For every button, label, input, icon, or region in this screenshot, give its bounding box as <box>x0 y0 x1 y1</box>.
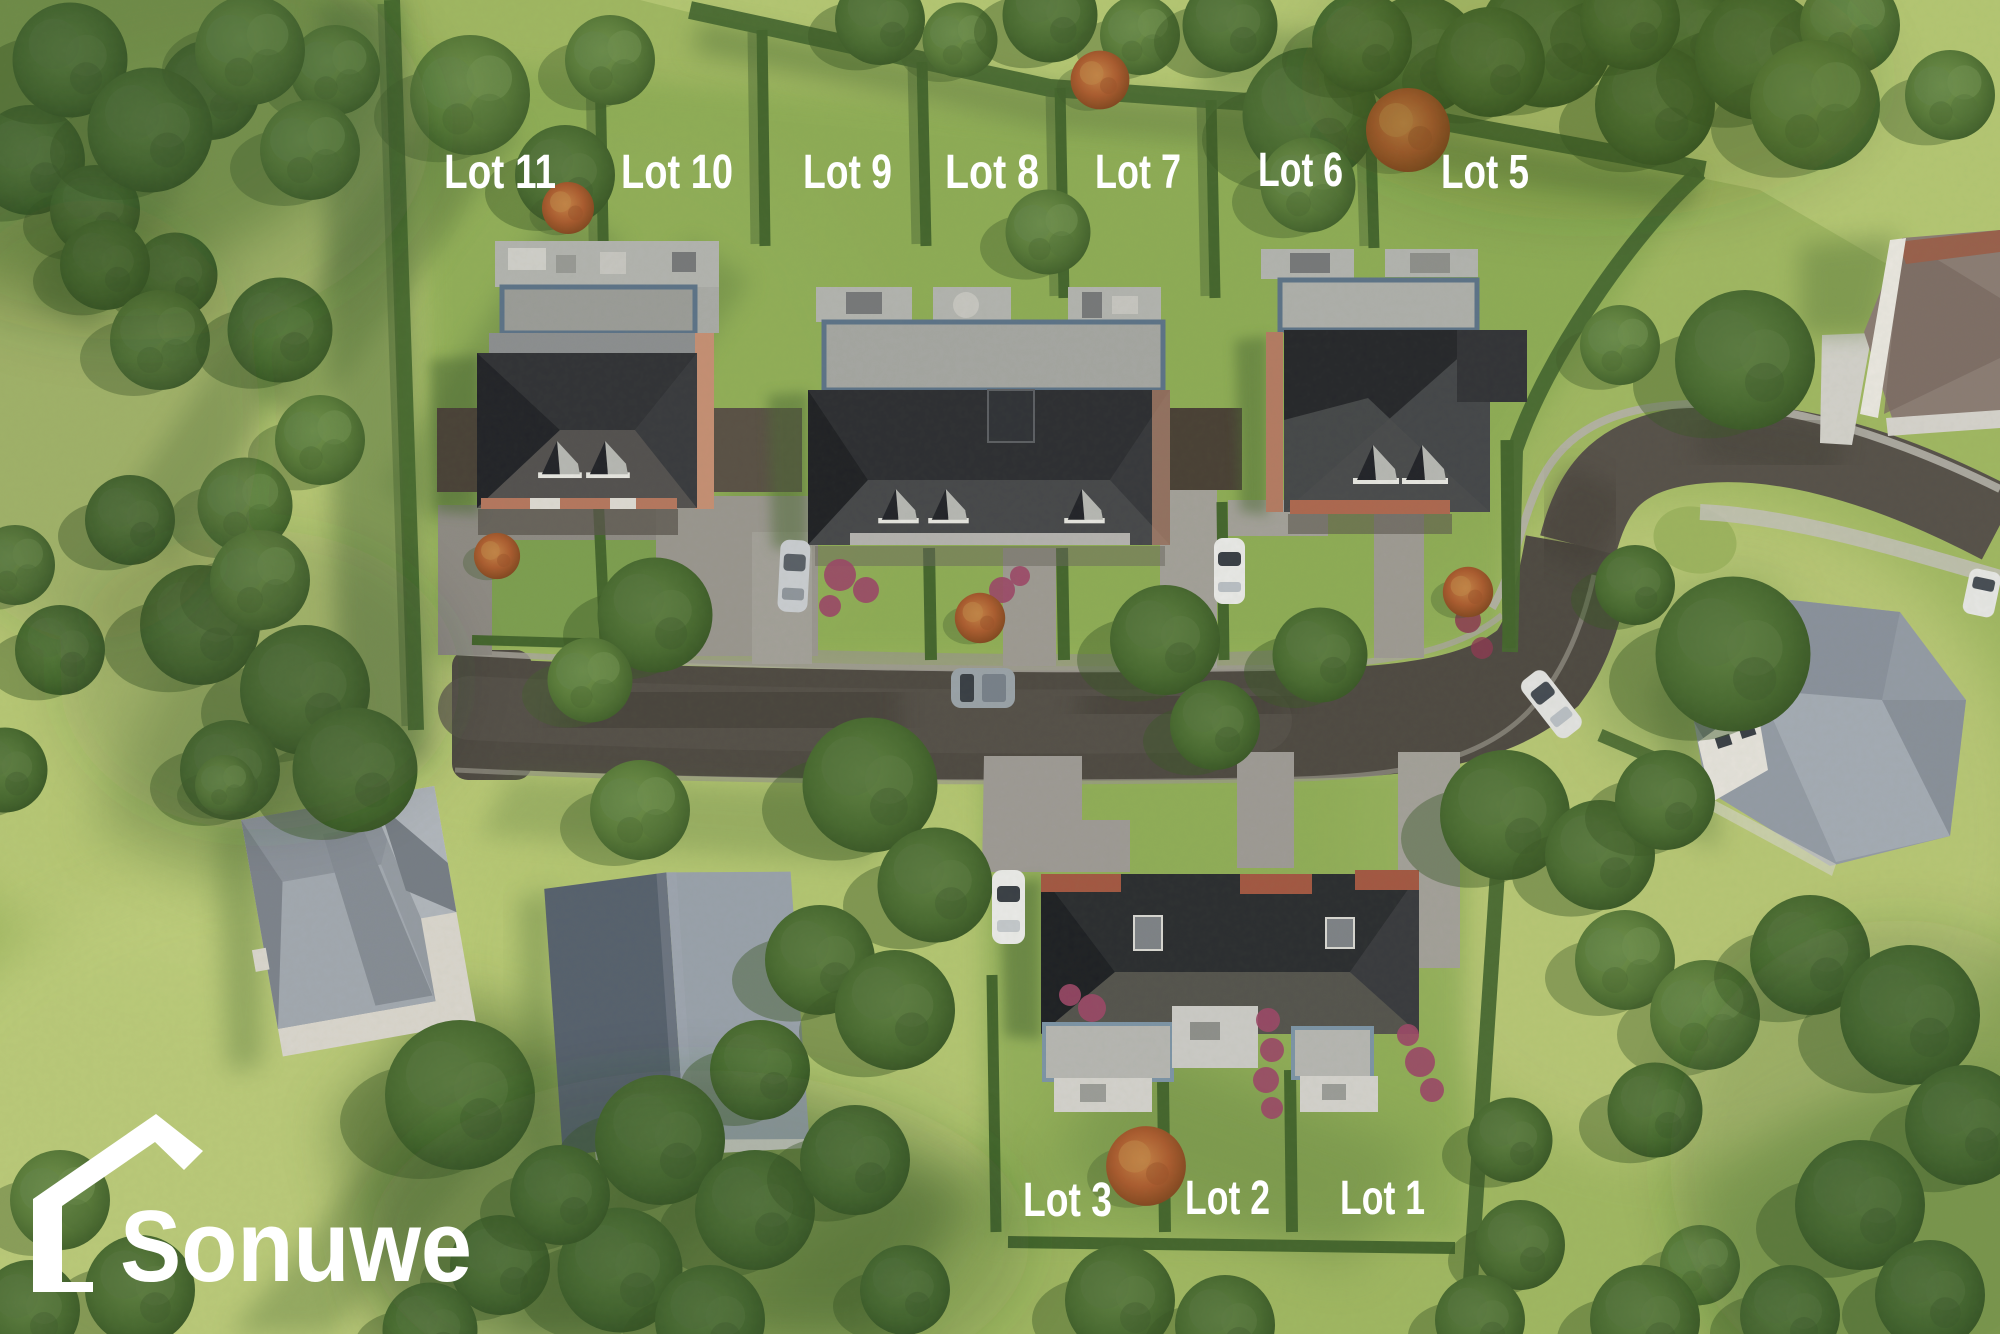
svg-text:Lot 11: Lot 11 <box>444 146 556 199</box>
svg-text:Lot 9: Lot 9 <box>803 146 892 199</box>
svg-text:Lot 6: Lot 6 <box>1258 144 1343 197</box>
svg-text:Lot 2: Lot 2 <box>1185 1172 1270 1225</box>
svg-text:Lot 8: Lot 8 <box>945 146 1039 199</box>
svg-text:Lot 5: Lot 5 <box>1441 146 1529 199</box>
svg-text:Lot 1: Lot 1 <box>1340 1172 1425 1225</box>
svg-text:Sonuwe: Sonuwe <box>120 1191 472 1303</box>
svg-text:Lot 3: Lot 3 <box>1023 1174 1112 1227</box>
svg-text:Lot 10: Lot 10 <box>621 146 733 199</box>
svg-text:Lot 7: Lot 7 <box>1095 146 1181 199</box>
